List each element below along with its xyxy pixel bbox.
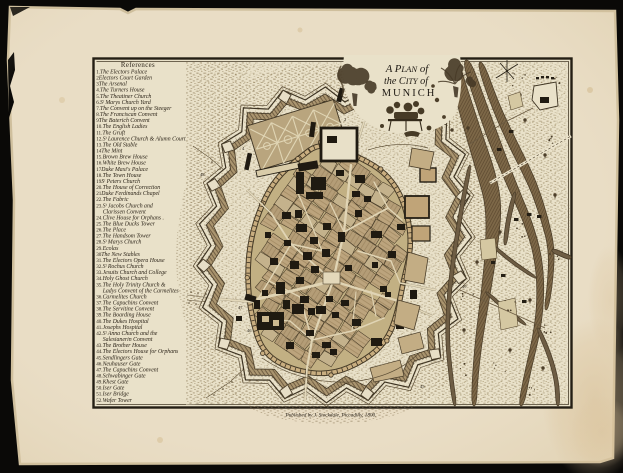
- svg-text:Published by J. Stockdale, Pic: Published by J. Stockdale, Piccadilly, 1…: [285, 413, 377, 419]
- svg-text:20.The House of Correction: 20.The House of Correction: [96, 184, 160, 191]
- svg-text:MUNICH: MUNICH: [382, 88, 437, 99]
- svg-text:9The Baterich Convent: 9The Baterich Convent: [96, 118, 150, 124]
- svg-text:22.The Fabric: 22.The Fabric: [96, 197, 129, 203]
- svg-text:4.The Turners House: 4.The Turners House: [96, 88, 145, 94]
- svg-text:52.Wafer Tower: 52.Wafer Tower: [96, 397, 132, 404]
- svg-text:31.The Electors Opera House: 31.The Electors Opera House: [96, 258, 165, 264]
- svg-text:48: 48: [200, 172, 205, 177]
- svg-text:1.The Electors Palace: 1.The Electors Palace: [96, 70, 147, 76]
- svg-text:43.The Brother House: 43.The Brother House: [96, 343, 147, 349]
- svg-text:25.The Blue Ducks Tower: 25.The Blue Ducks Tower: [96, 222, 156, 228]
- svg-text:References: References: [121, 62, 155, 69]
- svg-text:the CITY of: the CITY of: [384, 76, 429, 87]
- svg-text:14The Mint: 14The Mint: [96, 149, 123, 155]
- svg-text:16.White Brew House: 16.White Brew House: [96, 161, 146, 167]
- svg-text:46: 46: [247, 328, 252, 333]
- svg-text:46.Neuhauser Gate: 46.Neuhauser Gate: [96, 361, 141, 367]
- svg-text:Ladys Convent of the Carmelite: Ladys Convent of the Carmelites: [102, 287, 180, 294]
- svg-text:Salesianerin Convent: Salesianerin Convent: [103, 337, 153, 343]
- svg-text:45: 45: [420, 384, 425, 389]
- svg-text:2Electors Court Garden: 2Electors Court Garden: [96, 76, 152, 82]
- svg-text:29.Ecolas: 29.Ecolas: [96, 246, 119, 252]
- svg-text:49: 49: [462, 284, 467, 289]
- svg-text:42.Sᵗ Anna Church and the: 42.Sᵗ Anna Church and the: [96, 331, 158, 337]
- svg-text:24.Clive House for Orphans .: 24.Clive House for Orphans .: [96, 214, 164, 221]
- svg-text:28.Sᵗ Marys Church: 28.Sᵗ Marys Church: [96, 240, 141, 246]
- svg-text:2: 2: [344, 117, 346, 122]
- svg-text:17Duke Maxi's Palace: 17Duke Maxi's Palace: [96, 167, 148, 173]
- svg-text:47: 47: [238, 305, 243, 310]
- svg-text:34.Holy Ghost Church: 34.Holy Ghost Church: [96, 276, 148, 282]
- svg-text:33.Jesuits Church and College: 33.Jesuits Church and College: [96, 270, 167, 276]
- svg-text:12.Sᵗ Laurence Church & Alumn: 12.Sᵗ Laurence Church & Alumn Court: [96, 136, 186, 142]
- svg-text:30The New Stables: 30The New Stables: [96, 252, 140, 258]
- svg-text:48.Schwabinger Gate: 48.Schwabinger Gate: [96, 374, 146, 380]
- svg-text:26.The Place: 26.The Place: [96, 228, 126, 234]
- svg-text:15.Brown Brew House: 15.Brown Brew House: [96, 155, 148, 161]
- svg-text:39.The Boarding House: 39.The Boarding House: [96, 313, 151, 319]
- svg-text:21Duke Ferdinands Chapel: 21Duke Ferdinands Chapel: [96, 191, 160, 197]
- svg-text:7.The Convent up on the Steege: 7.The Convent up on the Steeger: [96, 106, 172, 112]
- svg-text:5.The Theatiner Church: 5.The Theatiner Church: [96, 94, 151, 100]
- svg-text:37.The Capuchins Convent: 37.The Capuchins Convent: [96, 301, 158, 307]
- svg-text:44.The Electors House for Orph: 44.The Electors House for Orphans: [96, 348, 179, 355]
- svg-text:A PLAN of: A PLAN of: [385, 63, 431, 75]
- svg-text:35.The Holy Trinity Church &: 35.The Holy Trinity Church &: [96, 282, 166, 288]
- svg-text:49.Khest Gate: 49.Khest Gate: [96, 380, 129, 386]
- svg-text:47.The Capuchins Convent: 47.The Capuchins Convent: [96, 367, 158, 373]
- svg-text:10.The English Ladies: 10.The English Ladies: [96, 124, 148, 130]
- svg-text:11.The Gruft: 11.The Gruft: [96, 129, 125, 136]
- svg-text:38.The Servitine Convent: 38.The Servitine Convent: [96, 307, 154, 313]
- svg-text:Clarissen Convent: Clarissen Convent: [103, 209, 146, 215]
- svg-text:51.Iser Bridge: 51.Iser Bridge: [96, 392, 129, 398]
- svg-text:40.The Dukes Hospital: 40.The Dukes Hospital: [96, 319, 149, 325]
- svg-text:19Sᵗ Peters Church: 19Sᵗ Peters Church: [96, 179, 140, 185]
- svg-text:6.Sᵗ Marys Church Yard: 6.Sᵗ Marys Church Yard: [96, 100, 151, 106]
